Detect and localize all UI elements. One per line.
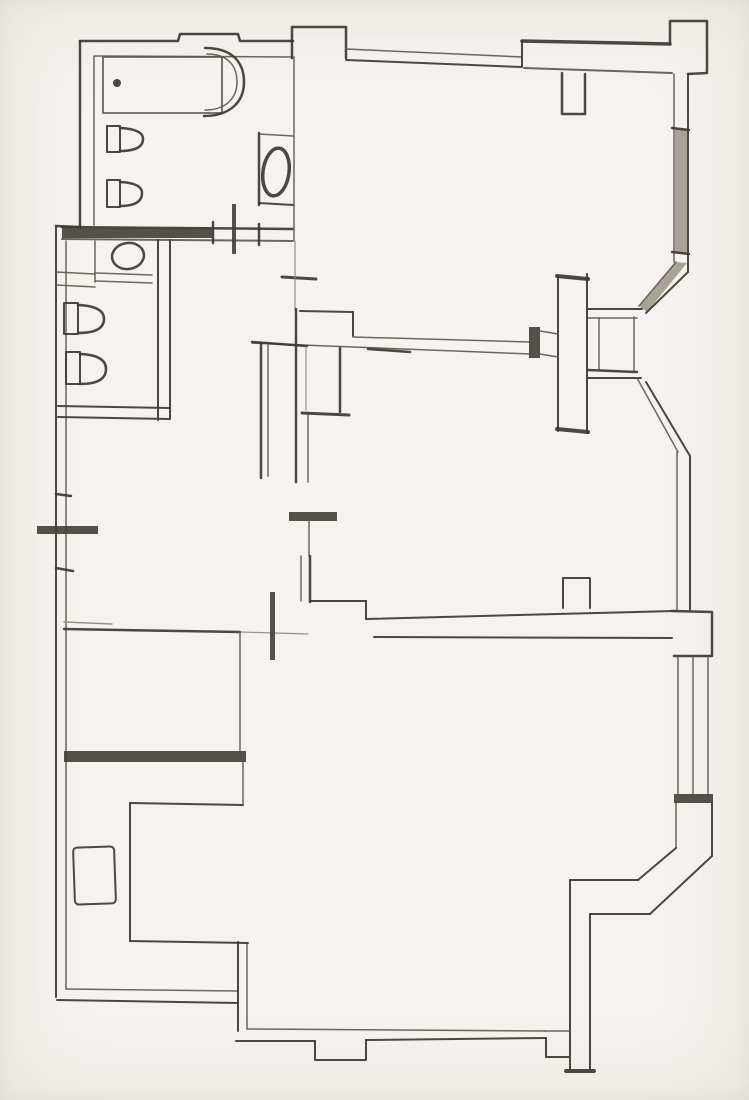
- shower-tray: [73, 846, 116, 904]
- toilet-4-tank: [107, 180, 120, 207]
- wc-cubicle-shelf-b: [95, 281, 152, 283]
- lower-room-band: [64, 751, 246, 762]
- wall-opening-tick: [282, 277, 316, 279]
- toilet-3-tank: [107, 126, 120, 152]
- wc-dark-band: [62, 228, 212, 238]
- wc-left-shelf-b: [56, 285, 95, 287]
- roof-stub: [562, 73, 585, 114]
- top-wall-right-lower: [346, 60, 522, 67]
- top-right-band-top: [522, 41, 670, 44]
- toilet-2-bowl: [80, 354, 106, 384]
- corner-chamfer-inner: [638, 848, 676, 880]
- top-wall-right-upper: [346, 49, 522, 57]
- bottom-wall2-upper: [247, 1029, 545, 1031]
- bathtub-end-inner: [205, 54, 237, 110]
- right-window-sill: [674, 794, 713, 803]
- bay-chamfer-bottom-inner: [637, 378, 678, 452]
- left-window-tick-bottom: [56, 568, 73, 571]
- basin-niche-bottom: [259, 203, 293, 205]
- top-right-riser: [670, 21, 707, 74]
- toilet-3-bowl: [120, 128, 143, 151]
- living-wall-upper: [366, 611, 674, 619]
- bay-pier-cap-bottom: [557, 429, 588, 432]
- bottom-wall-inner: [66, 989, 238, 991]
- floor-plan: [0, 0, 749, 1100]
- toilet-2-tank: [66, 352, 80, 384]
- door-marker-wc: [232, 204, 236, 254]
- toilet-1-bowl: [78, 305, 104, 333]
- hall-wall-left: [64, 629, 240, 632]
- sketch-paper: [0, 0, 749, 1100]
- corner-chamfer-outer: [650, 856, 712, 914]
- left-window-bar: [37, 526, 98, 534]
- corridor-conn-bottom: [540, 354, 558, 357]
- bay-chamfer-top-inner: [639, 262, 676, 306]
- door-marker-hall: [270, 592, 275, 660]
- toilet-4-bowl: [120, 182, 142, 206]
- top-right-band-bottom: [524, 68, 672, 73]
- bay-chamfer-top-shade: [639, 262, 687, 312]
- right-window-shade: [675, 129, 687, 253]
- bay-chamfer-bottom-outer: [646, 382, 690, 456]
- wc-cubicle-shelf-a: [95, 273, 152, 275]
- bottom-wall2-lower-b: [366, 1038, 546, 1040]
- lower-room-horiz-a: [130, 803, 243, 805]
- bathtub-drain: [113, 79, 121, 87]
- bottom-wall-outer: [57, 1000, 238, 1003]
- bottom-right-jog: [546, 1038, 569, 1057]
- doorstep-notch: [315, 1040, 366, 1060]
- toilet-cubicle-bowl: [110, 241, 145, 271]
- wc-bottom-lower: [58, 417, 170, 419]
- corner-pier: [672, 611, 712, 656]
- living-wall-lower: [374, 637, 672, 638]
- wc-bottom-upper: [58, 406, 170, 408]
- lower-room-horiz-b: [130, 941, 248, 943]
- corridor-wall-top: [353, 337, 530, 342]
- bathtub: [103, 57, 222, 113]
- shaft-boxA-top: [300, 311, 353, 312]
- shaft-boxC-bottom: [302, 413, 349, 415]
- wc-left-shelf-a: [56, 272, 95, 274]
- bay-box-bottom: [588, 370, 637, 372]
- corridor-jamb: [529, 327, 540, 358]
- left-window-tick-top: [56, 494, 71, 496]
- living-wall-stub: [563, 578, 590, 608]
- bay-pier-cap-top: [557, 276, 588, 279]
- hall-wall-left-double: [64, 622, 112, 624]
- basin-oval: [260, 146, 292, 197]
- chimney-block: [292, 27, 346, 58]
- basin-niche-top: [259, 134, 293, 136]
- top-wall-outer: [80, 34, 293, 41]
- door-bar-shaft: [289, 512, 337, 521]
- corridor-conn-top: [540, 331, 558, 334]
